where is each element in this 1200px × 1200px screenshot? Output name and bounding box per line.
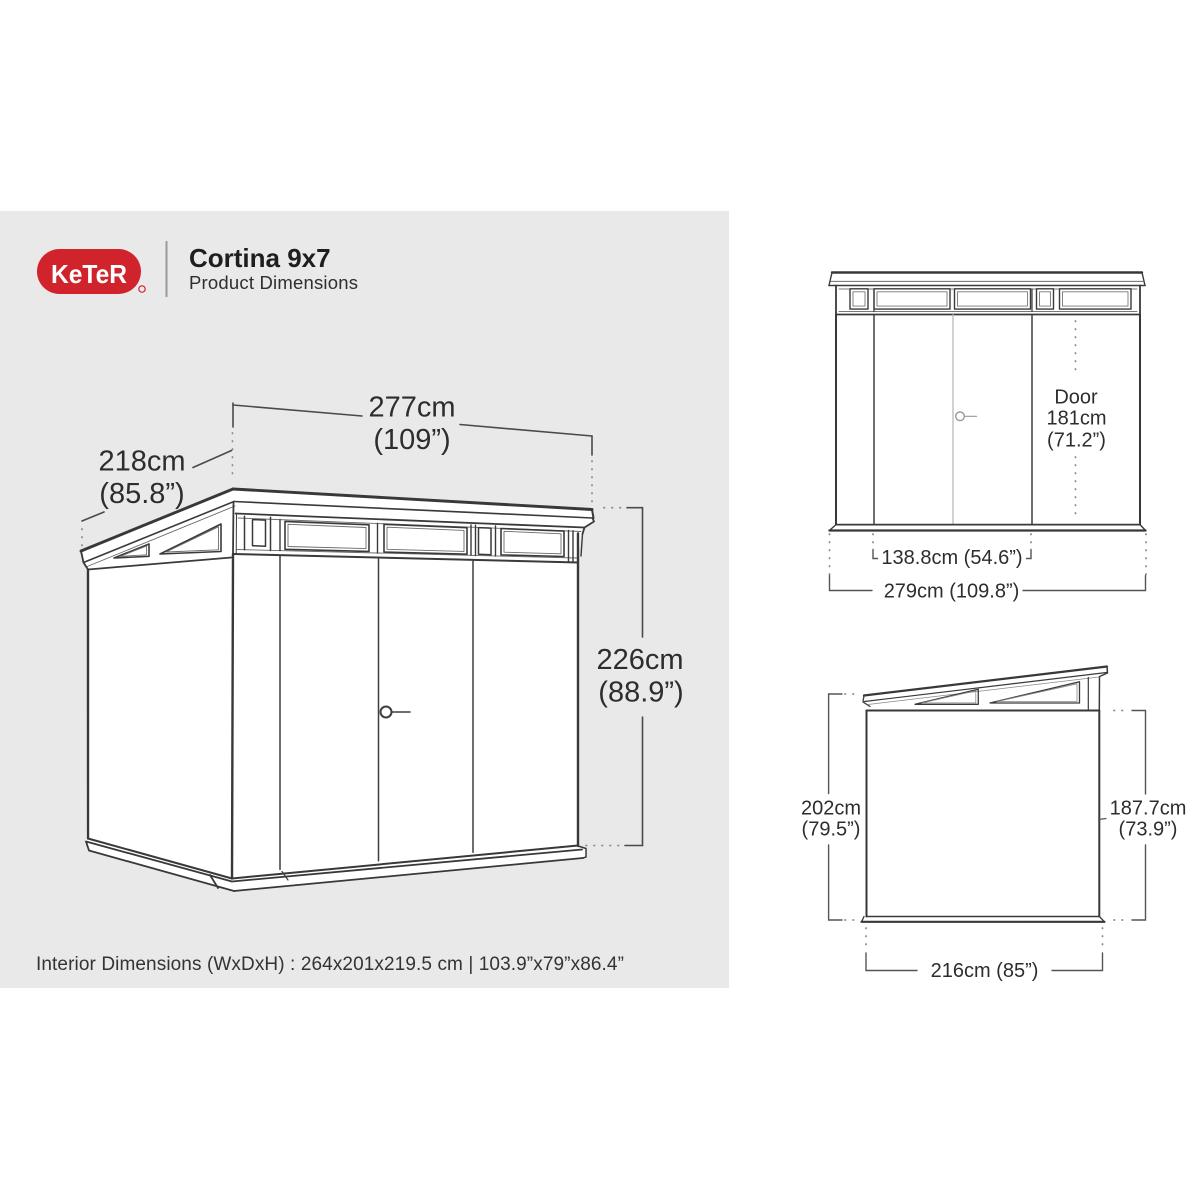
- svg-text:279cm (109.8”): 279cm (109.8”): [884, 581, 1020, 603]
- svg-text:138.8cm (54.6”): 138.8cm (54.6”): [881, 547, 1022, 569]
- svg-text:(85.8”): (85.8”): [99, 478, 184, 510]
- svg-text:Door: Door: [1054, 387, 1098, 409]
- svg-text:(109”): (109”): [373, 424, 450, 456]
- svg-text:(79.5”): (79.5”): [802, 819, 861, 841]
- svg-text:Interior Dimensions (WxDxH) :: Interior Dimensions (WxDxH) : 264x201x21…: [36, 954, 624, 975]
- svg-text:202cm: 202cm: [801, 798, 861, 820]
- svg-text:181cm: 181cm: [1046, 408, 1106, 430]
- svg-text:(88.9”): (88.9”): [598, 677, 683, 709]
- svg-text:216cm (85”): 216cm (85”): [931, 960, 1039, 982]
- svg-text:226cm: 226cm: [596, 644, 683, 676]
- svg-text:Cortina 9x7: Cortina 9x7: [189, 243, 331, 273]
- svg-text:(71.2”): (71.2”): [1047, 430, 1106, 452]
- svg-text:187.7cm: 187.7cm: [1110, 798, 1187, 820]
- svg-text:218cm: 218cm: [98, 446, 185, 478]
- svg-text:(73.9”): (73.9”): [1119, 819, 1178, 841]
- svg-text:KeTeR: KeTeR: [51, 259, 127, 289]
- svg-text:277cm: 277cm: [368, 392, 455, 424]
- svg-text:Product Dimensions: Product Dimensions: [189, 272, 358, 293]
